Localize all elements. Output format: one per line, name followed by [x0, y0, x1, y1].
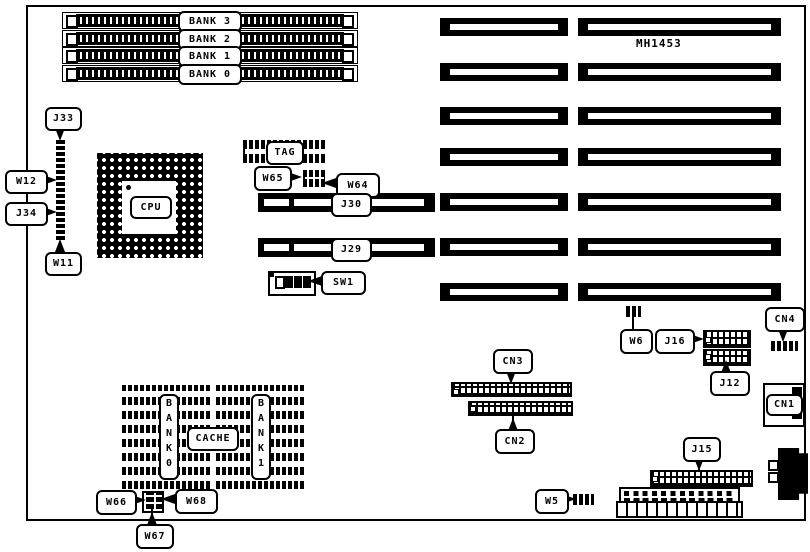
slot-stripe [450, 289, 558, 295]
j12-label: J12 [710, 371, 750, 396]
slot-stripe [588, 244, 771, 250]
simm-clip-right-icon [342, 50, 354, 63]
slot-stripe [588, 113, 771, 119]
cpu-pin1-dot-icon [126, 185, 131, 190]
w5-jumper [573, 494, 594, 505]
isa-slot-long [578, 238, 781, 256]
isa-slot-short [440, 18, 568, 36]
slot-divider [289, 244, 294, 251]
isa-slot-long [578, 193, 781, 211]
slot-stripe [588, 289, 771, 295]
slot-stripe [588, 154, 771, 160]
cpu-label: CPU [130, 196, 172, 219]
simm-clip-left-icon [66, 15, 78, 28]
w66-label: W66 [96, 490, 137, 515]
simm-clip-right-icon [342, 33, 354, 46]
isa-slot-short [440, 238, 568, 256]
board-model-text: MH1453 [636, 37, 682, 50]
sw1-switch-cell [294, 276, 302, 288]
isa-slot-short [440, 283, 568, 301]
cache-bank1-label: B A N K 1 [251, 394, 271, 480]
isa-slot-long [578, 148, 781, 166]
j16-label: J16 [655, 329, 695, 354]
slot-stripe [588, 69, 771, 75]
w67-label: W67 [136, 524, 174, 549]
j16-pin1-mark [706, 338, 710, 342]
cn3-label: CN3 [493, 349, 533, 374]
w11-label: W11 [45, 252, 82, 276]
cn4-header [771, 341, 798, 351]
slot-stripe [450, 199, 558, 205]
slot-stripe [588, 24, 771, 30]
isa-slot-long [578, 107, 781, 125]
j16-header [703, 330, 751, 348]
cn1-label: CN1 [766, 394, 803, 416]
bank0-label: BANK 0 [178, 64, 242, 85]
isa-slot-short [440, 193, 568, 211]
simm-clip-left-icon [66, 33, 78, 46]
slot-stripe [450, 113, 558, 119]
w65-label: W65 [254, 166, 292, 191]
isa-slot-short [440, 148, 568, 166]
isa-slot-long [578, 63, 781, 81]
slot-stripe [450, 69, 558, 75]
slot-divider [289, 199, 294, 206]
isa-slot-short [440, 107, 568, 125]
cn2-label: CN2 [495, 429, 535, 454]
simm-clip-left-icon [66, 50, 78, 63]
cn3-header [451, 382, 572, 397]
j34-label: J34 [5, 202, 48, 226]
w11-pointer [55, 239, 65, 252]
slot-stripe [450, 244, 558, 250]
keyboard-din-connector [775, 448, 808, 500]
power-connector-bottom [616, 501, 743, 518]
tag-label: TAG [266, 141, 304, 165]
j15-label: J15 [683, 437, 721, 462]
w6-jumper [626, 306, 641, 317]
isa-slot-long [578, 283, 781, 301]
j29-label: J29 [331, 238, 372, 262]
j30-label: J30 [331, 193, 372, 217]
j33-label: J33 [45, 107, 82, 131]
w64-pointer [322, 178, 336, 188]
cache-bank0-label: B A N K 0 [159, 394, 179, 480]
din-tab-icon [768, 460, 779, 471]
sw1-switch-cell [285, 276, 293, 288]
motherboard-diagram: BANK 3 BANK 2 BANK 1 BANK 0 J33 W12 J34 … [0, 0, 810, 552]
simm-clip-right-icon [342, 15, 354, 28]
slot-stripe [450, 24, 558, 30]
power-pins [624, 491, 735, 496]
isa-slot-short [440, 63, 568, 81]
sw1-corner-mark [269, 272, 274, 277]
sw1-label: SW1 [321, 271, 366, 295]
j15-header [650, 470, 753, 487]
simm-clip-right-icon [342, 68, 354, 81]
w6-label: W6 [620, 329, 653, 354]
w68-label: W68 [175, 489, 218, 514]
jumper-strip [56, 140, 65, 240]
cache-label: CACHE [187, 427, 239, 451]
sw1-pointer [308, 276, 322, 286]
cn3-pin1-mark [454, 390, 458, 394]
w5-label: W5 [535, 489, 569, 514]
w68-pointer [161, 494, 175, 504]
sw1-switch-cell [275, 276, 285, 289]
slot-stripe [450, 154, 558, 160]
slot-stripe [588, 199, 771, 205]
j15-pin1-mark [653, 477, 657, 481]
w12-label: W12 [5, 170, 48, 194]
isa-slot-long [578, 18, 781, 36]
cn2-header [468, 401, 573, 416]
simm-clip-left-icon [66, 68, 78, 81]
cn2-pin1-mark [471, 407, 475, 411]
din-tab-icon [768, 472, 779, 483]
w6-line [632, 317, 634, 329]
cn4-label: CN4 [765, 307, 805, 332]
j12-pin1-mark [706, 355, 710, 359]
